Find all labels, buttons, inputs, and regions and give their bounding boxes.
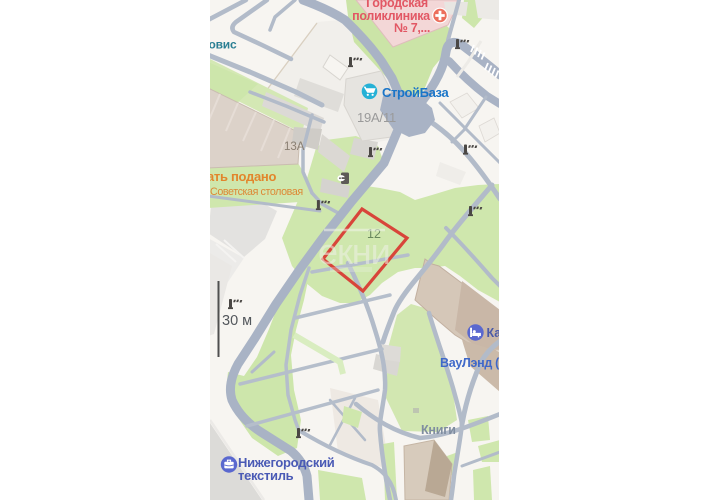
svg-text:30 м: 30 м <box>222 313 252 329</box>
svg-text:13А: 13А <box>284 141 305 153</box>
svg-text:ВауЛэнд (: ВауЛэнд ( <box>440 356 500 370</box>
svg-text:ать подано: ать подано <box>207 169 276 184</box>
svg-text:текстиль: текстиль <box>238 468 294 483</box>
svg-text:19А/11: 19А/11 <box>357 110 396 125</box>
svg-text:Книги: Книги <box>421 423 456 437</box>
svg-text:№ 7,...: № 7,... <box>394 21 430 35</box>
svg-text:СтройБаза: СтройБаза <box>382 85 449 100</box>
svg-text:овис: овис <box>209 38 237 52</box>
svg-text:Советская столовая: Советская столовая <box>210 186 303 198</box>
svg-text:екни: екни <box>318 231 390 272</box>
